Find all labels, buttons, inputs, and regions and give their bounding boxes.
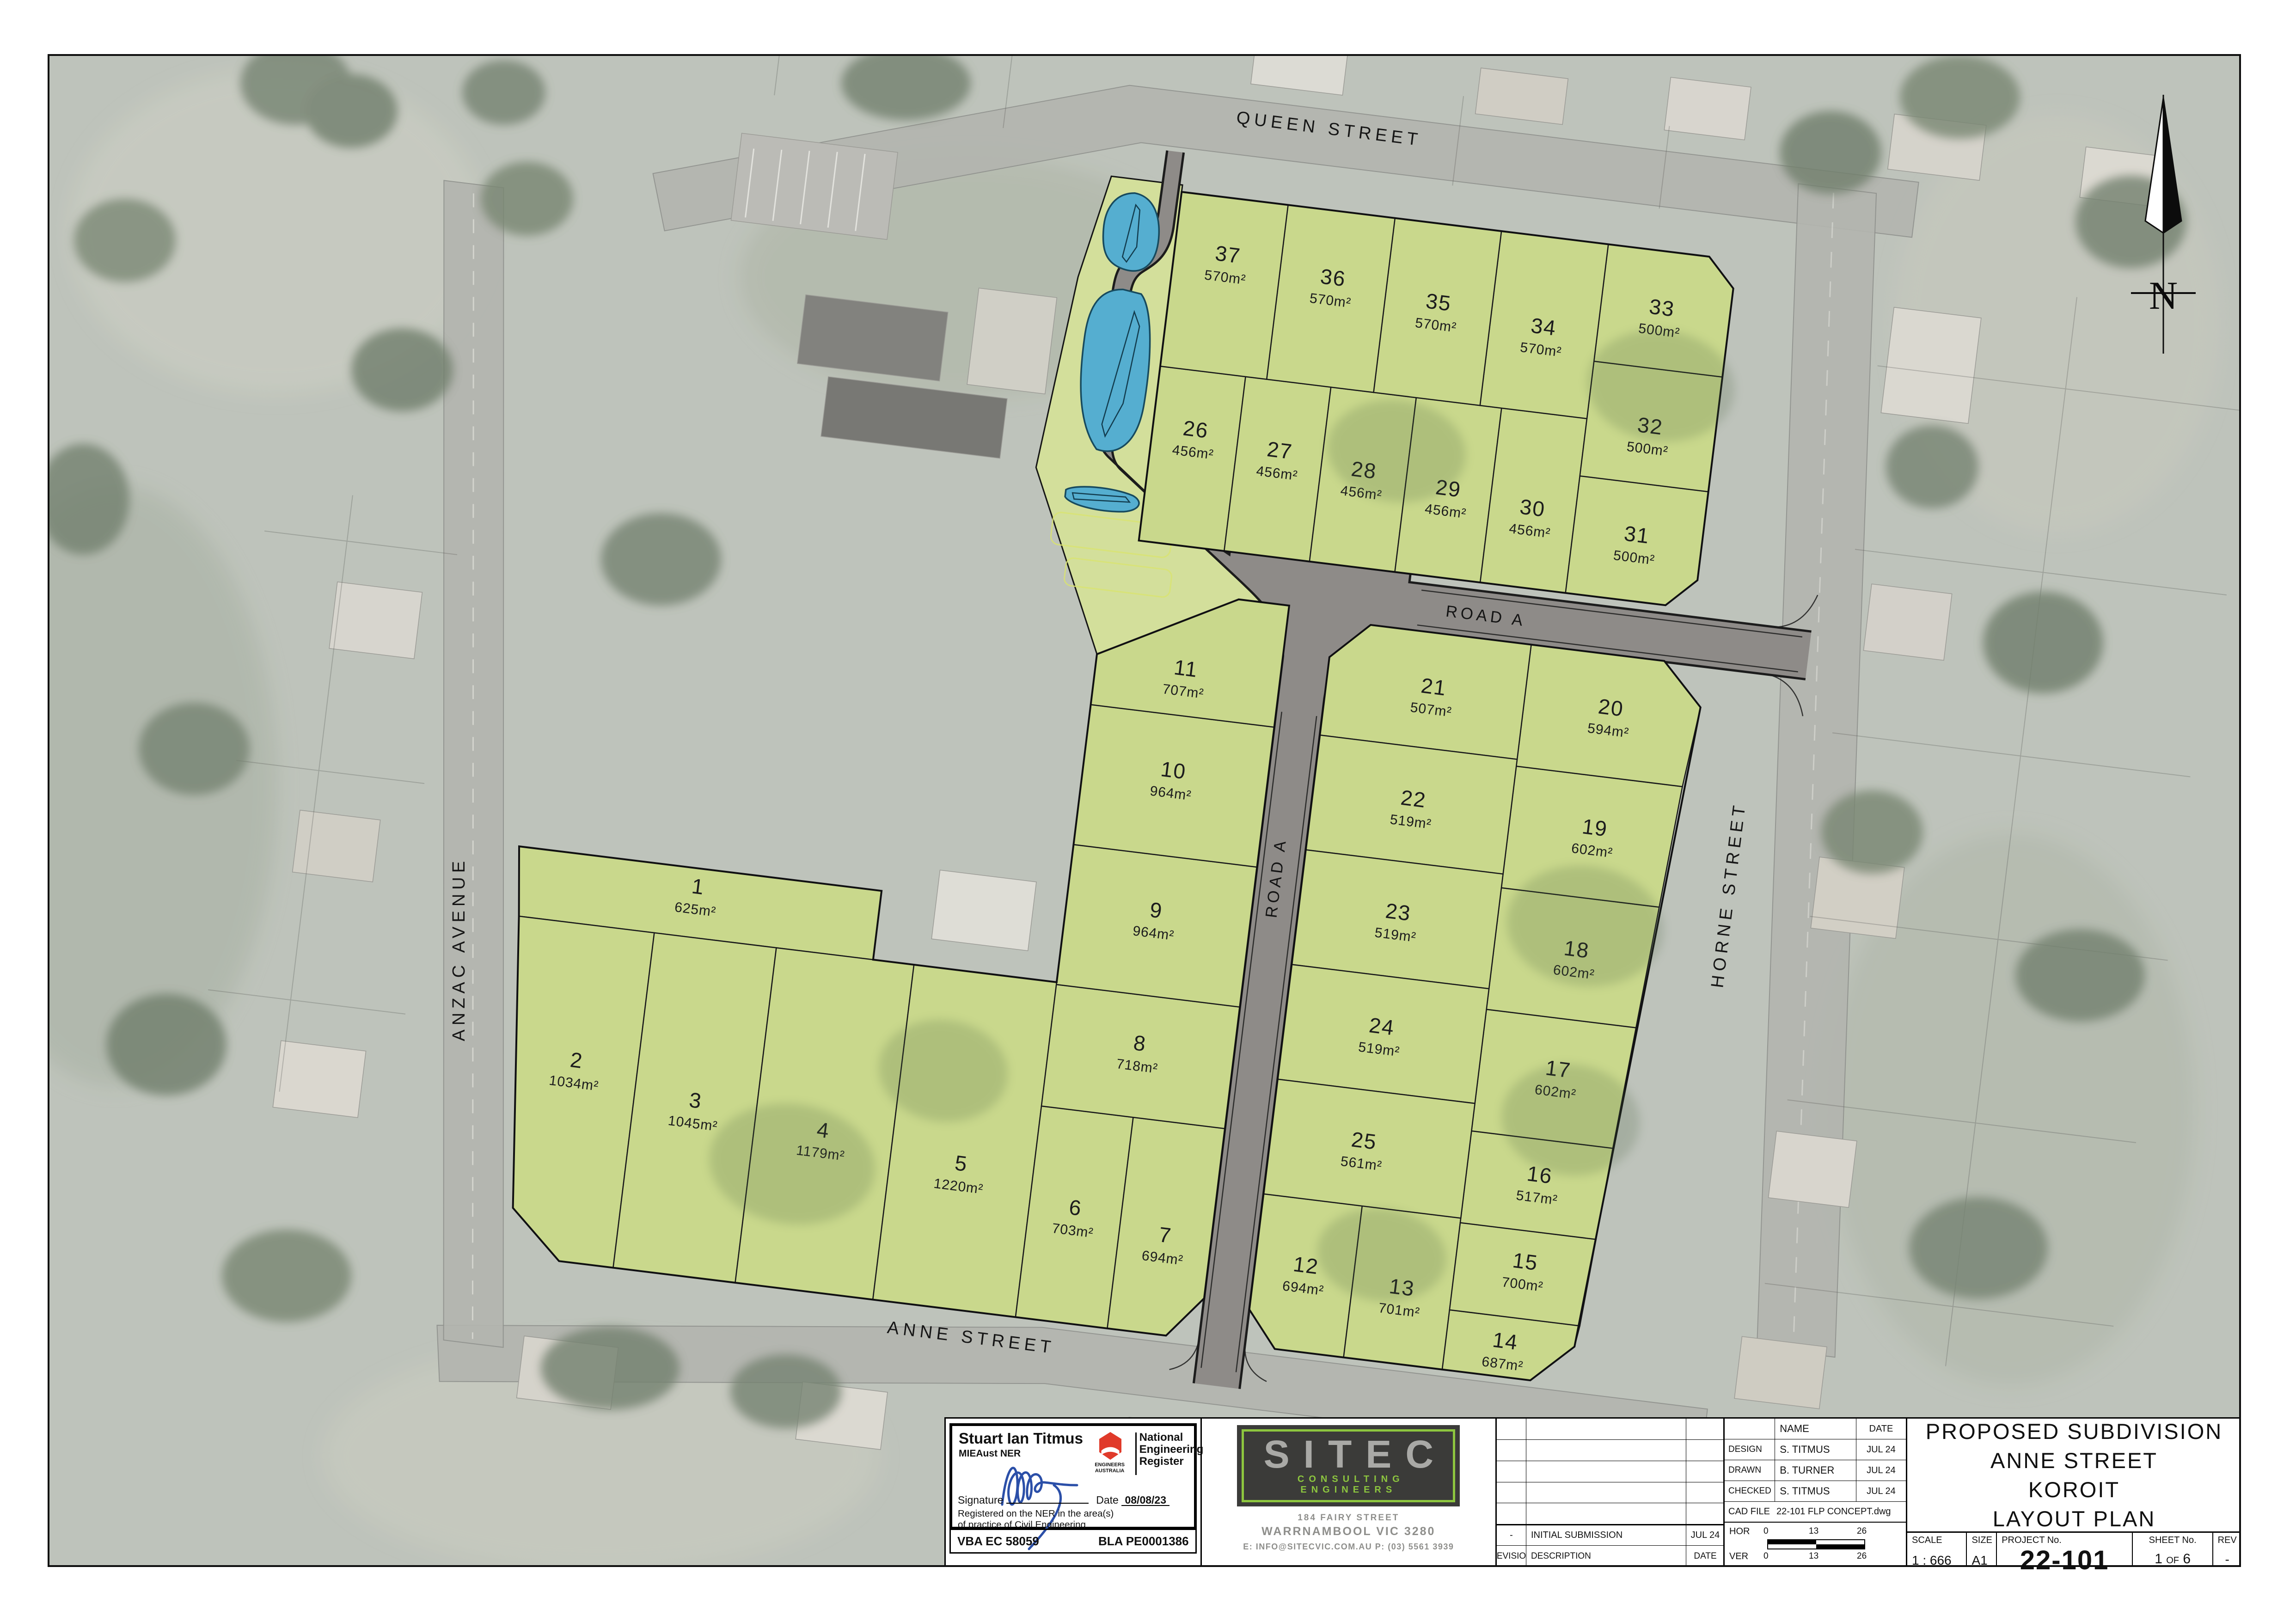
name-table-header-nt-role [1725, 1419, 1775, 1439]
lot-34-number: 34 [1530, 313, 1558, 340]
signature-label: Signature [958, 1494, 1003, 1506]
hor-label: HOR [1729, 1526, 1750, 1537]
lot-27-number: 27 [1266, 437, 1294, 464]
revision-empty-desc [1526, 1440, 1686, 1461]
name-table-row-design-nt-nm: S. TITMUS [1775, 1439, 1856, 1460]
lot-31-number: 31 [1623, 521, 1651, 548]
revision-empty-date [1686, 1440, 1725, 1461]
title-line-3: KOROIT [2028, 1477, 2120, 1502]
title-line-4: LAYOUT PLAN [1993, 1506, 2156, 1531]
sitec-logo-inner: SITEC CONSULTING ENGINEERS [1242, 1429, 1455, 1502]
ver-tick-13: 13 [1809, 1551, 1818, 1561]
revision-empty-date [1686, 1503, 1725, 1524]
size-label: SIZE [1971, 1535, 1992, 1546]
revision-date: JUL 24 [1686, 1524, 1725, 1546]
ver-label: VER [1729, 1551, 1748, 1562]
drawing-title-panel: PROPOSED SUBDIVISION ANNE STREET KOROIT … [1906, 1419, 2241, 1567]
title-block: Stuart Ian Titmus MIEAust NER ENGINEERS … [944, 1417, 2241, 1567]
lot-23-number: 23 [1384, 899, 1412, 925]
name-table-header-nt-nm: NAME [1775, 1419, 1856, 1439]
size-value: A1 [1971, 1553, 1987, 1568]
cad-file-value: 22-101 FLP CONCEPT.dwg [1776, 1506, 1891, 1517]
ver-tick-26: 26 [1857, 1551, 1867, 1561]
revision-header-description: DESCRIPTION [1526, 1546, 1686, 1567]
scale-bar-seg [1768, 1540, 1816, 1544]
project-cell: PROJECT No. 22-101 [1997, 1533, 2133, 1567]
ner-note: Registered on the NER in the area(s) of … [958, 1508, 1114, 1530]
revision-header-date: DATE [1686, 1546, 1725, 1567]
name-table-row-design-nt-dt: JUL 24 [1856, 1439, 1906, 1460]
plan-svg: 1625m²21034m²31045m²41179m²51220m²6703m²… [0, 0, 2296, 1622]
vba-number: VBA EC 58059 [957, 1534, 1039, 1549]
sitec-contact-line: E: INFO@SITECVIC.COM.AU P: (03) 5561 393… [1202, 1542, 1495, 1552]
sitec-tagline: CONSULTING ENGINEERS [1244, 1474, 1453, 1495]
sheet-cell: SHEET No. 1 OF 6 [2133, 1533, 2213, 1567]
ner-note-line1: Registered on the NER in the area(s) [958, 1508, 1114, 1519]
north-letter: N [2149, 273, 2178, 318]
lot-10-number: 10 [1159, 757, 1188, 783]
scale-bar-seg [1768, 1544, 1816, 1549]
name-table-row-drawn-nt-role: DRAWN [1725, 1460, 1775, 1481]
revision-rev: - [1497, 1524, 1526, 1546]
scale-cell: SCALE 1 : 666 [1907, 1533, 1967, 1567]
bla-number: BLA PE0001386 [1098, 1534, 1189, 1549]
lot-37-polygon [1160, 192, 1288, 379]
name-table-row-design: DESIGNS. TITMUSJUL 24 [1725, 1439, 1906, 1460]
title-line-2: ANNE STREET [1990, 1448, 2158, 1473]
lot-30-number: 30 [1518, 495, 1547, 521]
scale-bar-seg [1816, 1544, 1864, 1549]
name-date-table: NAMEDATEDESIGNS. TITMUSJUL 24DRAWNB. TUR… [1723, 1419, 1906, 1567]
date-label: Date [1096, 1494, 1119, 1506]
signature-line-row: Signature Date 08/08/23 [958, 1492, 1191, 1506]
sheet-total: 6 [2183, 1551, 2191, 1567]
name-table-row-checked-nt-dt: JUL 24 [1856, 1481, 1906, 1501]
sheet-value: 1 OF 6 [2133, 1551, 2212, 1567]
drawing-sheet: 1625m²21034m²31045m²41179m²51220m²6703m²… [0, 0, 2296, 1622]
lot-15-polygon [1450, 1223, 1596, 1327]
name-table-row-checked-nt-nm: S. TITMUS [1775, 1481, 1856, 1501]
sitec-logo-box: SITEC CONSULTING ENGINEERS [1237, 1425, 1460, 1506]
lot-35-number: 35 [1425, 288, 1453, 315]
name-table-row-design-nt-role: DESIGN [1725, 1439, 1775, 1460]
revision-grid: -INITIAL SUBMISSIONJUL 24REVISIONDESCRIP… [1497, 1419, 1723, 1567]
hor-tick-0: 0 [1763, 1526, 1769, 1536]
title-bottom-row: SCALE 1 : 666 SIZE A1 PROJECT No. 22-101… [1907, 1533, 2241, 1567]
sheet-of: OF [2166, 1555, 2179, 1566]
rev-value: - [2213, 1552, 2241, 1567]
rect-decoration [926, 0, 1015, 43]
revision-empty-date [1686, 1482, 1725, 1504]
name-table-row-drawn-nt-nm: B. TURNER [1775, 1460, 1856, 1481]
sitec-address-line1: 184 FAIRY STREET [1202, 1513, 1495, 1523]
lot-12-number: 12 [1292, 1252, 1320, 1279]
size-cell: SIZE A1 [1967, 1533, 1997, 1567]
signature-rule [1006, 1492, 1089, 1504]
revision-empty-desc [1526, 1419, 1686, 1440]
lot-19-number: 19 [1581, 814, 1609, 841]
hor-tick-26: 26 [1857, 1526, 1867, 1536]
revision-empty-desc [1526, 1482, 1686, 1504]
scale-label: SCALE [1912, 1535, 1942, 1546]
ver-tick-0: 0 [1763, 1551, 1769, 1561]
name-table-row-checked-nt-role: CHECKED [1725, 1481, 1775, 1501]
rev-label: REV [2213, 1535, 2241, 1546]
rev-cell: REV - [2213, 1533, 2241, 1567]
name-table-rows: NAMEDATEDESIGNS. TITMUSJUL 24DRAWNB. TUR… [1725, 1419, 1906, 1502]
name-table-body: NAMEDATEDESIGNS. TITMUSJUL 24DRAWNB. TUR… [1725, 1419, 1906, 1567]
lot-20-number: 20 [1597, 694, 1625, 721]
lot-15-number: 15 [1511, 1248, 1539, 1275]
lot-24-number: 24 [1368, 1013, 1396, 1040]
name-table-row-drawn-nt-dt: JUL 24 [1856, 1460, 1906, 1481]
project-number: 22-101 [1997, 1545, 2132, 1576]
sitec-logo-text: SITEC [1250, 1436, 1447, 1473]
sheet-clip-group: 1625m²21034m²31045m²41179m²51220m²6703m²… [0, 0, 2296, 1622]
scale-value: 1 : 666 [1912, 1553, 1952, 1568]
revision-table: -INITIAL SUBMISSIONJUL 24REVISIONDESCRIP… [1495, 1419, 1723, 1567]
date-value: 08/08/23 [1121, 1494, 1169, 1506]
lot-8-polygon [1041, 985, 1240, 1129]
scale-bar-bottom [1768, 1544, 1864, 1549]
revision-empty-date [1686, 1419, 1725, 1440]
lot-14-number: 14 [1491, 1328, 1519, 1354]
revision-description: INITIAL SUBMISSION [1526, 1524, 1686, 1546]
revision-empty-rev [1497, 1482, 1526, 1504]
sheet-number: 1 [2155, 1551, 2162, 1567]
lot-26-number: 26 [1182, 416, 1210, 442]
rect-decoration [782, 0, 894, 49]
name-table-row-drawn: DRAWNB. TURNERJUL 24 [1725, 1460, 1906, 1481]
lot-36-number: 36 [1319, 264, 1347, 291]
revision-empty-rev [1497, 1503, 1526, 1524]
revision-empty-rev [1497, 1440, 1526, 1461]
signature-card: Stuart Ian Titmus MIEAust NER ENGINEERS … [949, 1423, 1197, 1530]
signature-panel: Stuart Ian Titmus MIEAust NER ENGINEERS … [946, 1419, 1200, 1567]
scale-bar-seg [1816, 1540, 1864, 1544]
lot-21-number: 21 [1420, 673, 1448, 700]
lot-37-number: 37 [1214, 241, 1242, 268]
revision-empty-desc [1526, 1503, 1686, 1524]
lot-33-number: 33 [1648, 294, 1676, 321]
revision-header-revision: REVISION [1497, 1546, 1526, 1567]
revision-empty-rev [1497, 1419, 1526, 1440]
revision-empty-date [1686, 1461, 1725, 1482]
lot-22-number: 22 [1399, 785, 1427, 812]
project-label: PROJECT No. [2002, 1535, 2062, 1546]
cad-file-label: CAD FILE [1728, 1506, 1770, 1517]
registration-numbers: VBA EC 58059 BLA PE0001386 [949, 1529, 1197, 1554]
title-line-1: PROPOSED SUBDIVISION [1926, 1419, 2223, 1444]
cad-file-row: CAD FILE 22-101 FLP CONCEPT.dwg [1725, 1502, 1906, 1523]
lot-11-number: 11 [1173, 655, 1200, 682]
revision-empty-rev [1497, 1461, 1526, 1482]
revision-empty-desc [1526, 1461, 1686, 1482]
name-table-header-nt-dt: DATE [1856, 1419, 1906, 1439]
name-table-row-checked: CHECKEDS. TITMUSJUL 24 [1725, 1481, 1906, 1502]
sheet-label: SHEET No. [2133, 1535, 2212, 1546]
drawing-title: PROPOSED SUBDIVISION ANNE STREET KOROIT … [1907, 1419, 2241, 1533]
scale-bar-area: HOR VER 01326 01326 [1725, 1523, 1906, 1567]
hor-tick-13: 13 [1809, 1526, 1818, 1536]
lot-25-number: 25 [1350, 1127, 1378, 1154]
sitec-panel: SITEC CONSULTING ENGINEERS 184 FAIRY STR… [1200, 1419, 1495, 1567]
scale-bar [1767, 1539, 1865, 1549]
scale-bar-top [1768, 1540, 1864, 1544]
name-table-header: NAMEDATE [1725, 1419, 1906, 1439]
sitec-address-line2: WARRNAMBOOL VIC 3280 [1202, 1525, 1495, 1538]
street-label-anzac-avenue: ANZAC AVENUE [449, 857, 469, 1041]
